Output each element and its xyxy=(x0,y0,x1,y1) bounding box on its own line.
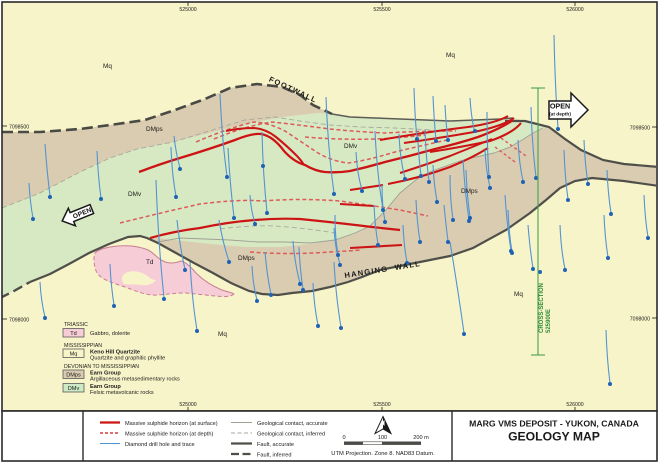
svg-text:Gabbro, dolerite: Gabbro, dolerite xyxy=(90,331,130,337)
svg-text:526000: 526000 xyxy=(566,7,583,13)
svg-text:7098000: 7098000 xyxy=(630,317,650,323)
svg-text:UTM Projection. Zone 8. NAD83: UTM Projection. Zone 8. NAD83 Datum. xyxy=(331,451,435,457)
svg-text:Diamond drill hole and trace: Diamond drill hole and trace xyxy=(125,442,195,448)
svg-text:GEOLOGY MAP: GEOLOGY MAP xyxy=(508,430,600,444)
svg-text:Td: Td xyxy=(146,259,154,266)
svg-text:Mq: Mq xyxy=(70,352,78,358)
svg-text:525900E: 525900E xyxy=(546,309,552,333)
svg-text:Massive sulphide horizon (at s: Massive sulphide horizon (at surface) xyxy=(125,421,218,427)
svg-text:MARG VMS DEPOSIT - YUKON, CANA: MARG VMS DEPOSIT - YUKON, CANADA xyxy=(469,419,639,429)
svg-text:DMps: DMps xyxy=(146,126,163,133)
svg-text:Mq: Mq xyxy=(103,63,112,70)
svg-text:0: 0 xyxy=(342,435,345,441)
svg-text:7098500: 7098500 xyxy=(630,126,650,132)
svg-text:DMv: DMv xyxy=(128,191,142,198)
svg-text:DMps: DMps xyxy=(66,373,81,379)
svg-text:CROSS-SECTION: CROSS-SECTION xyxy=(539,283,545,333)
svg-text:Felsic metavolcanic rocks: Felsic metavolcanic rocks xyxy=(90,390,154,396)
svg-text:525500: 525500 xyxy=(373,7,390,13)
svg-text:DMps: DMps xyxy=(461,188,478,195)
svg-text:100: 100 xyxy=(378,435,387,441)
svg-text:200 m: 200 m xyxy=(413,435,429,441)
svg-text:DMv: DMv xyxy=(68,386,80,392)
svg-text:Mq: Mq xyxy=(446,52,455,59)
svg-text:526000: 526000 xyxy=(566,402,583,408)
svg-text:Mq: Mq xyxy=(514,291,523,298)
svg-text:MISSISSIPPIAN: MISSISSIPPIAN xyxy=(64,343,102,349)
svg-text:DMv: DMv xyxy=(344,143,358,150)
svg-text:Argillaceous metasedimentary r: Argillaceous metasedimentary rocks xyxy=(90,377,180,383)
svg-text:Quartzite and graphitic phylli: Quartzite and graphitic phyllite xyxy=(90,356,165,362)
svg-text:(at depth): (at depth) xyxy=(549,112,571,118)
svg-text:TRIASSIC: TRIASSIC xyxy=(64,322,88,328)
svg-text:Fault, accurate: Fault, accurate xyxy=(257,442,294,448)
svg-text:Fault, inferred: Fault, inferred xyxy=(257,453,292,459)
svg-text:Geological contact, accurate: Geological contact, accurate xyxy=(257,421,328,427)
svg-text:525500: 525500 xyxy=(373,402,390,408)
svg-text:Massive sulphide horizon (at d: Massive sulphide horizon (at depth) xyxy=(125,432,213,438)
svg-text:OPEN: OPEN xyxy=(550,102,570,111)
svg-text:525000: 525000 xyxy=(179,402,196,408)
svg-text:525000: 525000 xyxy=(179,7,196,13)
svg-text:Mq: Mq xyxy=(218,331,227,338)
svg-text:DEVONIAN TO MISSISSIPPIAN: DEVONIAN TO MISSISSIPPIAN xyxy=(64,364,139,370)
svg-text:7098000: 7098000 xyxy=(9,318,29,324)
svg-text:7098500: 7098500 xyxy=(9,125,29,131)
svg-text:Td: Td xyxy=(70,331,77,337)
svg-text:Geological contact, inferred: Geological contact, inferred xyxy=(257,432,325,438)
svg-text:DMps: DMps xyxy=(238,255,255,262)
